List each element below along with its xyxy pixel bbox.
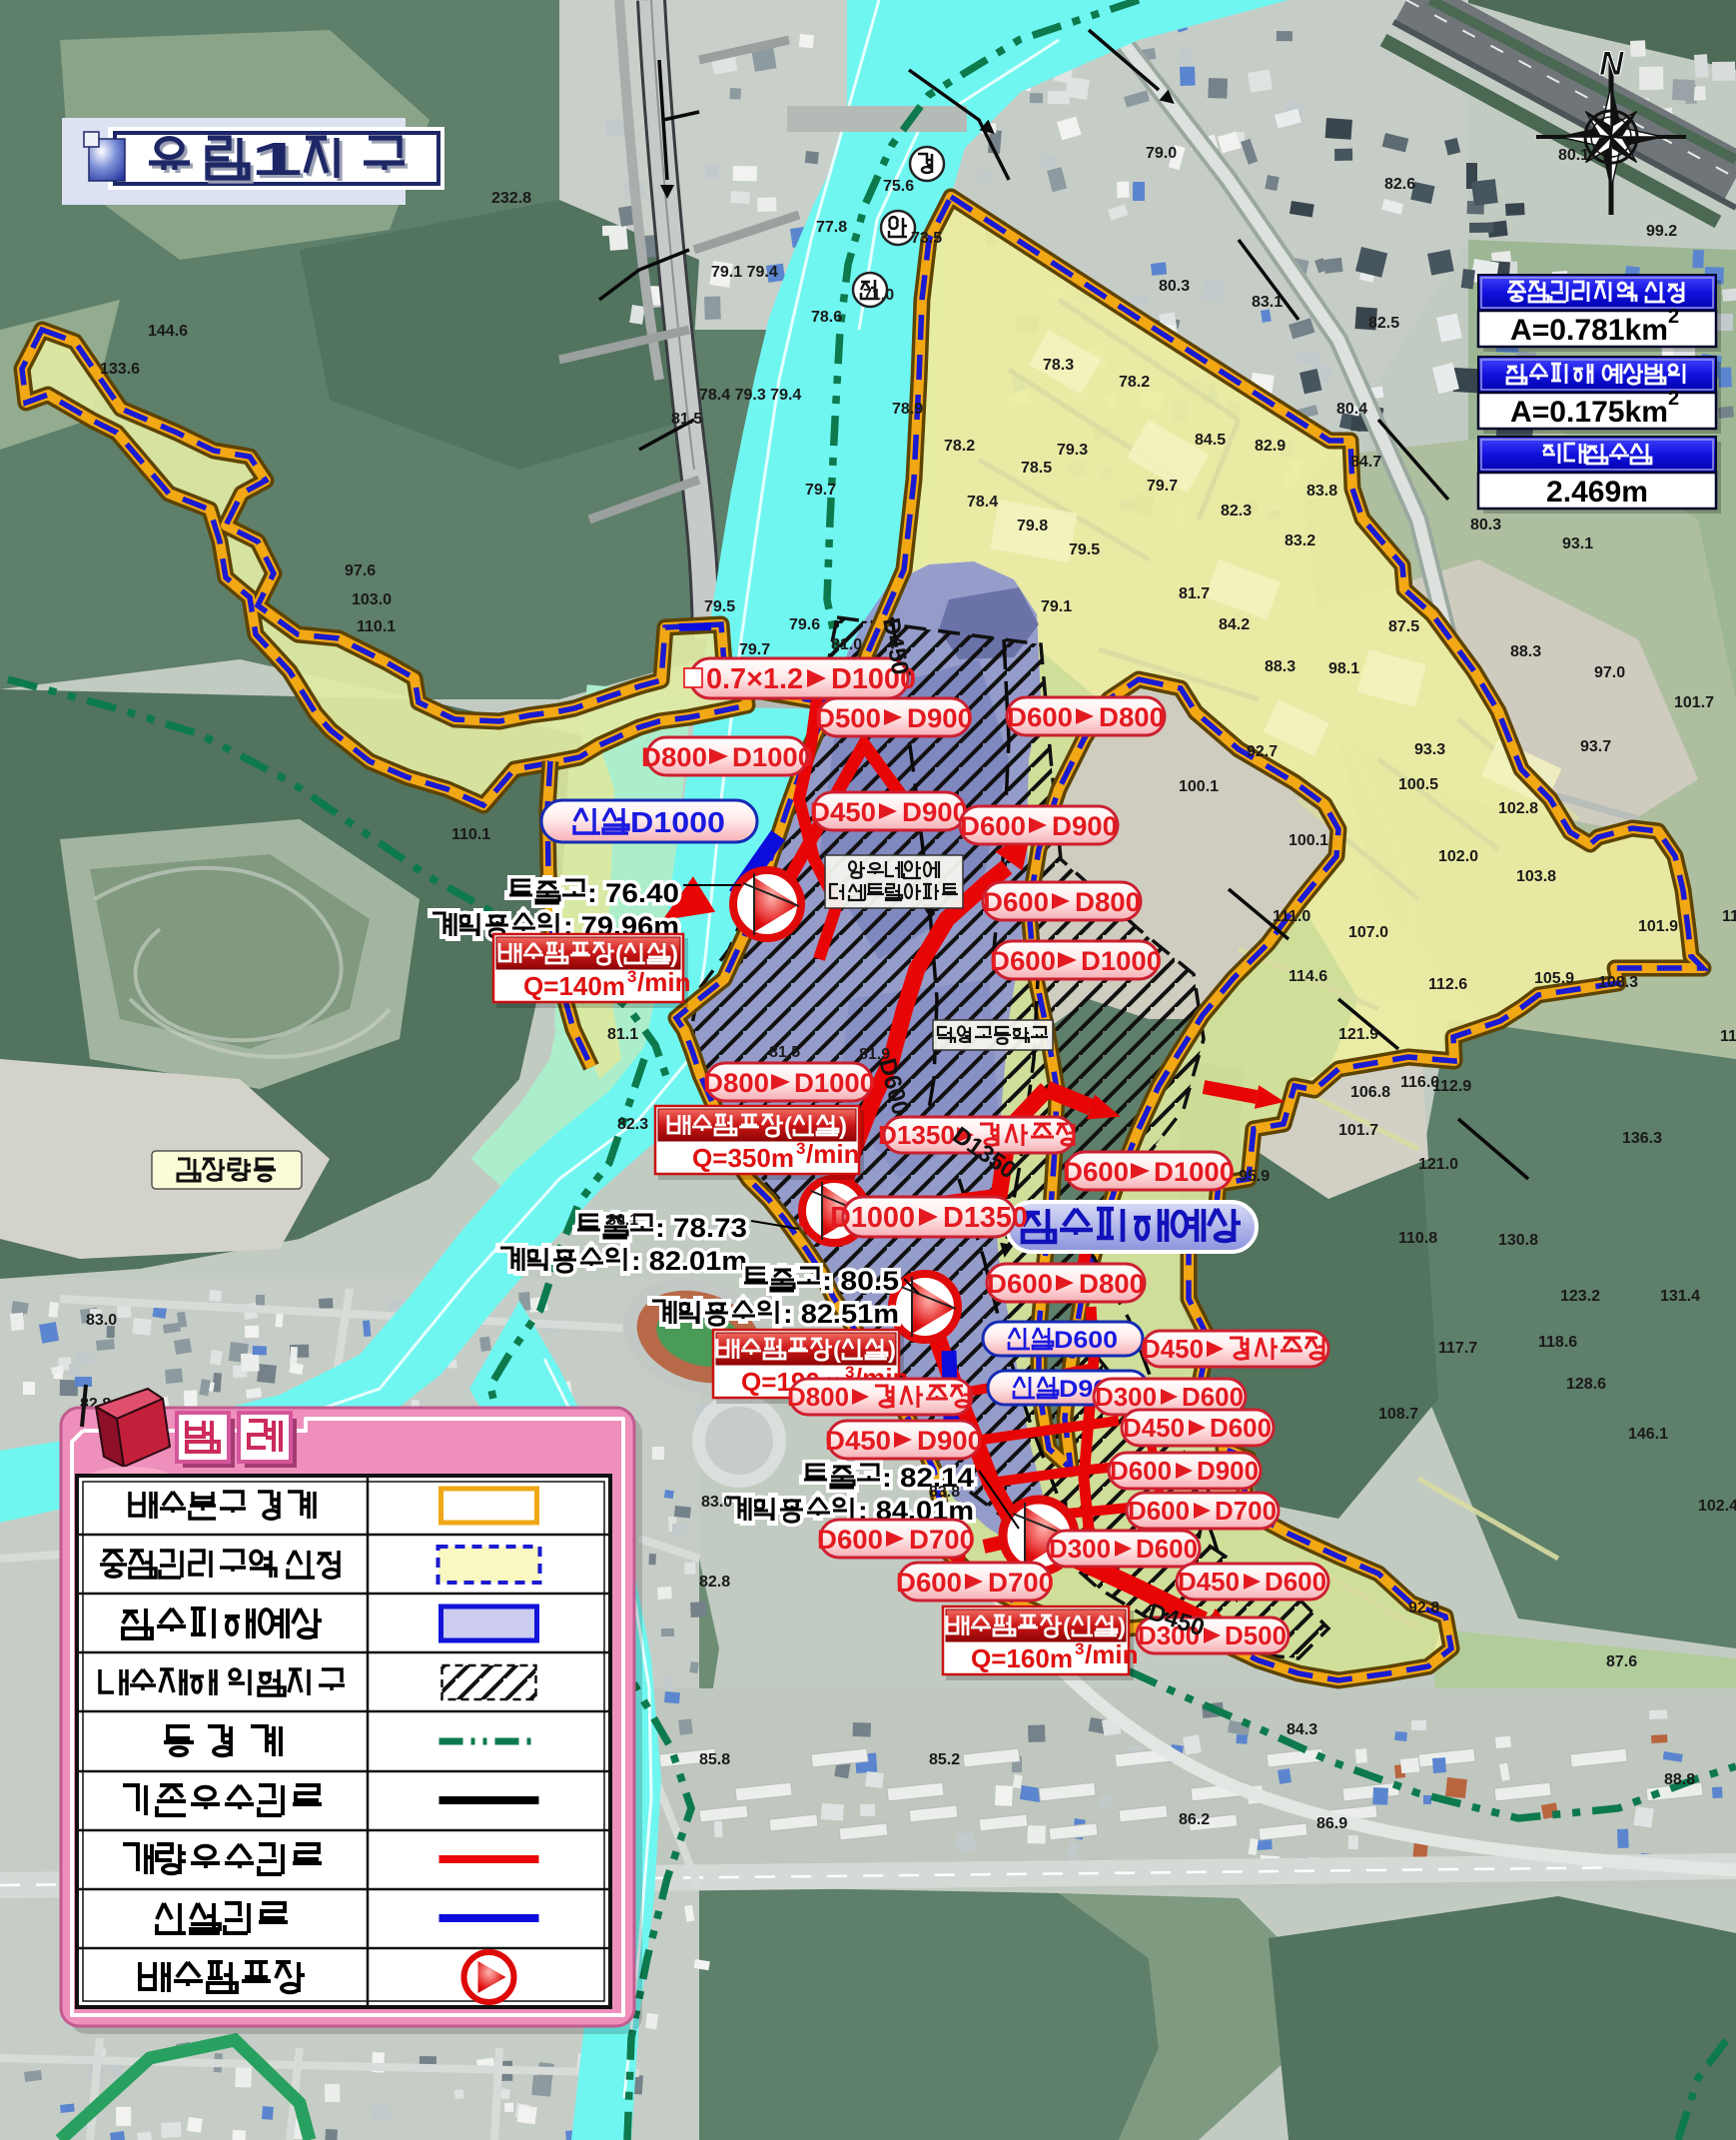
svg-text:: 82.01m: : 82.01m — [631, 1246, 747, 1276]
svg-text:D600: D600 — [983, 887, 1049, 917]
svg-text:D900: D900 — [907, 703, 973, 733]
svg-text:102.8: 102.8 — [1498, 800, 1538, 817]
svg-text:92.7: 92.7 — [1247, 743, 1278, 760]
svg-text:78.2: 78.2 — [944, 438, 975, 455]
svg-text:D600: D600 — [1182, 1382, 1244, 1412]
svg-text:101.7: 101.7 — [1338, 1122, 1378, 1139]
svg-text:97.6: 97.6 — [345, 562, 376, 579]
svg-text:81.7: 81.7 — [1179, 585, 1210, 602]
svg-text:101.7: 101.7 — [1674, 694, 1714, 711]
svg-text:93.7: 93.7 — [1580, 738, 1611, 755]
svg-text:: 82.14: : 82.14 — [882, 1463, 974, 1493]
svg-text:80.1: 80.1 — [1558, 147, 1589, 164]
svg-text:D600: D600 — [817, 1525, 883, 1555]
svg-text:99.2: 99.2 — [1646, 223, 1677, 240]
svg-text:85.2: 85.2 — [929, 1751, 960, 1768]
svg-text:79.8: 79.8 — [1017, 518, 1048, 535]
svg-text:: 78.73: : 78.73 — [655, 1213, 747, 1243]
svg-text:130.8: 130.8 — [1498, 1232, 1538, 1249]
svg-text:D600: D600 — [990, 946, 1056, 976]
svg-text:85.8: 85.8 — [699, 1751, 730, 1768]
svg-text:D900: D900 — [1052, 811, 1118, 841]
svg-text:/min: /min — [1085, 1639, 1138, 1669]
svg-text:D800: D800 — [1075, 887, 1141, 917]
svg-text:(: ( — [615, 941, 623, 968]
svg-text:D450: D450 — [1123, 1413, 1185, 1443]
svg-text:87.5: 87.5 — [1388, 618, 1419, 635]
svg-text:79.7: 79.7 — [739, 641, 770, 658]
svg-text:1: 1 — [251, 133, 303, 185]
svg-text:83.8: 83.8 — [1306, 483, 1337, 500]
svg-text:78.2: 78.2 — [1119, 374, 1150, 391]
svg-text:79.0: 79.0 — [1146, 145, 1177, 162]
svg-text:100.5: 100.5 — [1398, 776, 1438, 793]
svg-text:87.6: 87.6 — [1606, 1653, 1637, 1670]
svg-text:79.7: 79.7 — [805, 482, 836, 499]
svg-text:78.6: 78.6 — [811, 309, 842, 326]
svg-text:105.9: 105.9 — [1534, 970, 1574, 987]
svg-text:80.1: 80.1 — [607, 1212, 638, 1229]
svg-text:D600: D600 — [1210, 1413, 1272, 1443]
svg-text:84.2: 84.2 — [1219, 616, 1250, 633]
svg-text:133.6: 133.6 — [100, 361, 140, 378]
svg-text:D600: D600 — [1110, 1456, 1172, 1486]
svg-text:82.5: 82.5 — [1368, 315, 1399, 332]
svg-text:84.5: 84.5 — [1195, 432, 1226, 449]
svg-text:2.469m: 2.469m — [1546, 476, 1648, 509]
svg-text:: 76.40: : 76.40 — [587, 878, 679, 908]
svg-text:108.3: 108.3 — [1598, 974, 1638, 991]
svg-text:81.1: 81.1 — [607, 1026, 638, 1043]
svg-text:D600: D600 — [1128, 1496, 1190, 1526]
svg-text:Q=140m: Q=140m — [523, 971, 625, 1001]
svg-text:D700: D700 — [1215, 1496, 1277, 1526]
svg-text:100.1: 100.1 — [1179, 778, 1219, 795]
svg-text:103.0: 103.0 — [352, 591, 392, 608]
svg-text:78.9: 78.9 — [892, 401, 923, 418]
svg-text:82.3: 82.3 — [617, 1116, 648, 1133]
svg-text:82.3: 82.3 — [1221, 503, 1252, 520]
svg-text:79.5: 79.5 — [1069, 541, 1100, 558]
svg-text:112.6: 112.6 — [1428, 976, 1467, 993]
svg-text:D450: D450 — [1142, 1334, 1204, 1364]
svg-text:81.5: 81.5 — [671, 411, 702, 428]
svg-text:D800: D800 — [1099, 702, 1165, 732]
svg-text:D600: D600 — [1265, 1567, 1326, 1597]
svg-text:83.8: 83.8 — [929, 1484, 960, 1501]
svg-text:110.1: 110.1 — [357, 618, 396, 635]
svg-text:Q=350m: Q=350m — [692, 1143, 794, 1173]
svg-text:107.0: 107.0 — [1348, 924, 1388, 941]
svg-text:D1350: D1350 — [878, 1120, 955, 1150]
svg-text:D600: D600 — [960, 811, 1026, 841]
svg-text:118.6: 118.6 — [1538, 1334, 1577, 1351]
svg-text:95.9: 95.9 — [1239, 1168, 1270, 1185]
svg-text:D800: D800 — [787, 1382, 849, 1412]
svg-text:/min: /min — [637, 967, 690, 997]
svg-text:116.8: 116.8 — [1720, 1028, 1736, 1045]
svg-text:102.4: 102.4 — [1698, 1498, 1736, 1515]
svg-text:79.7: 79.7 — [1147, 478, 1178, 495]
svg-text:D450: D450 — [810, 797, 876, 827]
svg-text:3: 3 — [627, 967, 636, 986]
svg-text:144.6: 144.6 — [148, 323, 188, 340]
svg-text:106.8: 106.8 — [1350, 1084, 1390, 1101]
svg-text:: 82.51m: : 82.51m — [783, 1299, 899, 1329]
svg-text:79.1 79.4: 79.1 79.4 — [711, 264, 778, 281]
svg-text:(: ( — [833, 1337, 841, 1364]
svg-text:D600: D600 — [987, 1269, 1053, 1299]
svg-text:83.2: 83.2 — [1285, 533, 1315, 549]
svg-text:88.3: 88.3 — [1265, 658, 1296, 675]
svg-text:75.6: 75.6 — [883, 178, 914, 195]
svg-text:D500: D500 — [1225, 1620, 1287, 1650]
svg-text:D900: D900 — [902, 797, 968, 827]
svg-text:83.0: 83.0 — [86, 1312, 117, 1329]
svg-text:83.1: 83.1 — [1252, 294, 1283, 311]
svg-text:103.8: 103.8 — [1516, 868, 1556, 885]
svg-text:D450: D450 — [825, 1426, 891, 1456]
svg-text:2: 2 — [1668, 306, 1679, 328]
svg-text:79.6: 79.6 — [789, 616, 820, 633]
svg-text:(: ( — [1063, 1613, 1071, 1640]
svg-text:79.1: 79.1 — [1041, 598, 1072, 615]
svg-text:D600: D600 — [1136, 1534, 1198, 1564]
svg-text:D300: D300 — [1095, 1382, 1157, 1412]
svg-text:D900: D900 — [1197, 1456, 1259, 1486]
svg-text:): ) — [888, 1337, 896, 1364]
svg-text:Q=160m: Q=160m — [971, 1643, 1073, 1673]
svg-text:D600: D600 — [1063, 1157, 1129, 1187]
svg-text:110.8: 110.8 — [1398, 1230, 1437, 1247]
svg-text:79.5: 79.5 — [704, 598, 735, 615]
svg-text:83.0: 83.0 — [701, 1494, 732, 1511]
svg-text:101.9: 101.9 — [1638, 918, 1678, 935]
svg-text:D600: D600 — [896, 1568, 962, 1598]
svg-text:D1000: D1000 — [794, 1068, 875, 1098]
svg-text:136.3: 136.3 — [1622, 1130, 1662, 1147]
svg-text:78.4: 78.4 — [967, 494, 998, 511]
svg-text:131.4: 131.4 — [1660, 1288, 1700, 1305]
svg-text:D1000: D1000 — [830, 1202, 915, 1234]
svg-text:112.4: 112.4 — [1722, 908, 1736, 925]
svg-text:114.6: 114.6 — [1289, 968, 1327, 985]
svg-text:3: 3 — [1075, 1639, 1084, 1658]
svg-text:2: 2 — [1668, 388, 1679, 410]
svg-text:77.8: 77.8 — [816, 219, 847, 236]
svg-text:81.5: 81.5 — [769, 1044, 800, 1061]
svg-text:): ) — [1118, 1613, 1126, 1640]
svg-text:D1000: D1000 — [1154, 1157, 1235, 1187]
svg-text:D700: D700 — [909, 1525, 975, 1555]
svg-text:D700: D700 — [988, 1568, 1054, 1598]
svg-text:98.1: 98.1 — [1328, 660, 1359, 677]
svg-text:82.6: 82.6 — [1384, 176, 1415, 193]
svg-text:78.4 79.3 79.4: 78.4 79.3 79.4 — [699, 387, 801, 404]
svg-text:A=0.175km: A=0.175km — [1510, 396, 1668, 429]
svg-text:93.3: 93.3 — [1414, 741, 1445, 758]
svg-text:111.0: 111.0 — [1273, 908, 1310, 925]
svg-text:A=0.781km: A=0.781km — [1510, 314, 1668, 347]
svg-text:D800: D800 — [703, 1068, 769, 1098]
svg-text:110.1: 110.1 — [451, 826, 490, 843]
svg-text:81.0: 81.0 — [831, 636, 862, 653]
svg-text:88.3: 88.3 — [1510, 643, 1541, 660]
svg-text:D600: D600 — [1054, 1327, 1118, 1354]
svg-text:232.8: 232.8 — [491, 190, 531, 207]
svg-text:84.7: 84.7 — [1350, 454, 1381, 471]
svg-text:78.5: 78.5 — [1021, 460, 1052, 477]
svg-text:N: N — [1599, 45, 1625, 83]
svg-text:D500: D500 — [815, 703, 881, 733]
svg-text:128.6: 128.6 — [1566, 1376, 1606, 1393]
svg-text:93.1: 93.1 — [1562, 535, 1593, 552]
svg-text:3: 3 — [796, 1139, 805, 1158]
svg-text:80.3: 80.3 — [1470, 517, 1501, 534]
svg-text:102.0: 102.0 — [1438, 848, 1478, 865]
svg-text:92.8: 92.8 — [1408, 1600, 1439, 1616]
svg-text:88.8: 88.8 — [1664, 1771, 1695, 1788]
svg-text:D300: D300 — [1049, 1534, 1111, 1564]
svg-text:108.7: 108.7 — [1378, 1406, 1418, 1423]
svg-text:80.4: 80.4 — [1336, 401, 1367, 418]
svg-text:97.0: 97.0 — [1594, 664, 1625, 681]
svg-text:0.7×1.2: 0.7×1.2 — [706, 663, 803, 695]
svg-text:D900: D900 — [917, 1426, 983, 1456]
svg-text:146.1: 146.1 — [1628, 1426, 1668, 1443]
svg-text:86.9: 86.9 — [1316, 1815, 1347, 1832]
svg-text:82.8: 82.8 — [699, 1574, 730, 1591]
svg-text:84.3: 84.3 — [1287, 1721, 1317, 1738]
svg-text:D1350: D1350 — [943, 1202, 1028, 1234]
svg-text:78.3: 78.3 — [1043, 357, 1074, 374]
svg-text:123.2: 123.2 — [1560, 1288, 1600, 1305]
svg-text:D600: D600 — [1007, 702, 1073, 732]
svg-text:100.1: 100.1 — [1289, 832, 1328, 849]
svg-text:/min: /min — [806, 1139, 859, 1169]
svg-text:117.7: 117.7 — [1438, 1340, 1477, 1357]
svg-text:71.0: 71.0 — [863, 287, 894, 304]
svg-text:D1000: D1000 — [732, 742, 813, 772]
svg-text:D1000: D1000 — [1081, 946, 1162, 976]
svg-text:121.0: 121.0 — [1418, 1156, 1458, 1173]
svg-text:): ) — [670, 941, 678, 968]
svg-text:82.9: 82.9 — [1255, 438, 1286, 455]
svg-text:): ) — [839, 1113, 847, 1140]
svg-text:D450: D450 — [1178, 1567, 1240, 1597]
svg-text:79.3: 79.3 — [1057, 442, 1088, 459]
svg-text:D800: D800 — [641, 742, 707, 772]
svg-text:D1000: D1000 — [630, 807, 725, 839]
svg-text:86.2: 86.2 — [1179, 1811, 1210, 1828]
svg-text:: 80.5: : 80.5 — [822, 1266, 899, 1296]
svg-text:(: ( — [784, 1113, 792, 1140]
svg-text:112.9: 112.9 — [1432, 1078, 1471, 1095]
svg-text:73.5: 73.5 — [911, 230, 942, 247]
svg-text:81.9: 81.9 — [859, 1046, 890, 1063]
svg-text:80.3: 80.3 — [1159, 278, 1190, 295]
svg-text:121.9: 121.9 — [1338, 1026, 1378, 1043]
svg-text:D800: D800 — [1079, 1269, 1145, 1299]
